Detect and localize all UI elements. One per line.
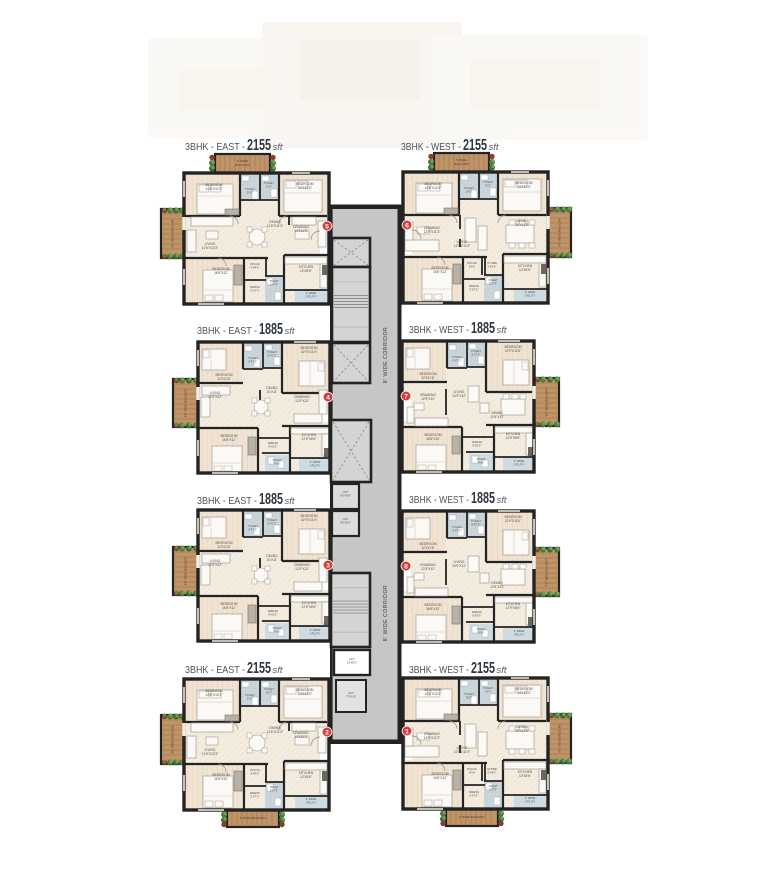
svg-text:5' WIDE BALCONY: 5' WIDE BALCONY bbox=[240, 816, 266, 820]
svg-text:12'9"X11'6": 12'9"X11'6" bbox=[301, 518, 318, 522]
svg-text:8' WIDE CORRIDOR: 8' WIDE CORRIDOR bbox=[383, 585, 389, 642]
svg-text:4'X4'6": 4'X4'6" bbox=[251, 266, 260, 270]
svg-text:2155: 2155 bbox=[247, 137, 271, 154]
svg-text:14'X13'3": 14'X13'3" bbox=[517, 691, 532, 695]
svg-text:12'X8'6": 12'X8'6" bbox=[300, 269, 313, 273]
svg-text:16'6"X12': 16'6"X12' bbox=[433, 776, 447, 780]
svg-text:5'X7'3": 5'X7'3" bbox=[453, 529, 462, 533]
svg-text:6'6"X6'6": 6'6"X6'6" bbox=[340, 493, 351, 497]
svg-text:6'6" WIDE BALCONY: 6'6" WIDE BALCONY bbox=[558, 724, 562, 753]
svg-text:5'X7': 5'X7' bbox=[247, 697, 254, 701]
svg-text:UTILITY: UTILITY bbox=[310, 632, 321, 636]
svg-text:3BHK - WEST -: 3BHK - WEST - bbox=[401, 141, 461, 153]
svg-text:5'X7'3": 5'X7'3" bbox=[472, 523, 481, 527]
svg-text:6'6" WIDE BALCONY: 6'6" WIDE BALCONY bbox=[558, 218, 562, 247]
svg-text:14'X11'3": 14'X11'3" bbox=[294, 735, 308, 739]
svg-text:2155: 2155 bbox=[247, 660, 271, 677]
svg-text:14'6"X12'3": 14'6"X12'3" bbox=[425, 186, 443, 190]
svg-text:12'9"X11'6": 12'9"X11'6" bbox=[301, 350, 318, 354]
svg-text:3BHK - EAST -: 3BHK - EAST - bbox=[197, 495, 257, 507]
svg-text:5' WIDE BALCONY: 5' WIDE BALCONY bbox=[459, 815, 485, 819]
svg-text:1885: 1885 bbox=[259, 321, 283, 338]
svg-text:sft: sft bbox=[273, 142, 283, 153]
svg-text:12'9"X11'6": 12'9"X11'6" bbox=[505, 349, 522, 353]
svg-text:16'6"X12': 16'6"X12' bbox=[222, 606, 236, 610]
svg-text:5'X7'3": 5'X7'3" bbox=[249, 528, 258, 532]
svg-text:14'6"X12'3": 14'6"X12'3" bbox=[206, 187, 224, 191]
svg-text:16'6"X12': 16'6"X12' bbox=[433, 270, 447, 274]
svg-text:4: 4 bbox=[326, 395, 330, 402]
svg-text:5'X7': 5'X7' bbox=[485, 184, 492, 188]
svg-text:14'X11'3": 14'X11'3" bbox=[515, 223, 529, 227]
svg-text:10'9"X12': 10'9"X12' bbox=[452, 564, 466, 568]
svg-text:12'X8'6": 12'X8'6" bbox=[300, 775, 313, 779]
svg-text:sft: sft bbox=[285, 496, 295, 507]
svg-text:3BHK - WEST -: 3BHK - WEST - bbox=[409, 664, 469, 676]
svg-text:5'X4'6": 5'X4'6" bbox=[488, 771, 497, 775]
svg-text:3BHK - EAST -: 3BHK - EAST - bbox=[185, 141, 245, 153]
svg-text:12'6"X12': 12'6"X12' bbox=[490, 585, 504, 589]
svg-text:12'9"X12': 12'9"X12' bbox=[295, 567, 309, 571]
svg-text:14'6"X12'3": 14'6"X12'3" bbox=[425, 692, 443, 696]
svg-text:8'X5'9": 8'X5'9" bbox=[269, 613, 278, 617]
svg-text:11'6"X11'3": 11'6"X11'3" bbox=[267, 224, 284, 228]
svg-text:16'6"X12': 16'6"X12' bbox=[214, 777, 228, 781]
svg-text:5'X7': 5'X7' bbox=[466, 190, 473, 194]
svg-text:sft: sft bbox=[489, 142, 499, 153]
svg-text:BALCONY: BALCONY bbox=[454, 162, 468, 166]
svg-text:5'X7': 5'X7' bbox=[485, 690, 492, 694]
svg-text:12'9"X12': 12'9"X12' bbox=[208, 395, 222, 399]
svg-text:12'9"X8'6": 12'9"X8'6" bbox=[302, 605, 318, 609]
svg-text:4'6" WIDE BALCONY: 4'6" WIDE BALCONY bbox=[184, 557, 188, 586]
svg-text:5'X4'6": 5'X4'6" bbox=[488, 265, 497, 269]
svg-text:5'X7': 5'X7' bbox=[247, 191, 254, 195]
svg-text:2: 2 bbox=[325, 730, 329, 737]
svg-text:1885: 1885 bbox=[471, 490, 495, 507]
svg-text:5'X4': 5'X4' bbox=[469, 265, 476, 269]
svg-text:6'6" WIDE BALCONY: 6'6" WIDE BALCONY bbox=[171, 725, 175, 754]
svg-text:12'9"X8'6": 12'9"X8'6" bbox=[506, 436, 522, 440]
svg-text:16'6"X12': 16'6"X12' bbox=[214, 271, 228, 275]
svg-text:5'X7'3": 5'X7'3" bbox=[489, 787, 497, 791]
svg-text:4'6" WIDE BALCONY: 4'6" WIDE BALCONY bbox=[184, 389, 188, 418]
svg-text:3BHK - EAST -: 3BHK - EAST - bbox=[197, 325, 257, 337]
svg-text:2155: 2155 bbox=[471, 660, 495, 677]
svg-text:sft: sft bbox=[497, 665, 507, 676]
svg-text:8' WIDE CORRIDOR: 8' WIDE CORRIDOR bbox=[383, 327, 389, 384]
svg-text:8'X5'9": 8'X5'9" bbox=[473, 614, 482, 618]
svg-text:5'X7'3": 5'X7'3" bbox=[472, 353, 481, 357]
svg-text:4'X4'6": 4'X4'6" bbox=[251, 772, 260, 776]
svg-text:14'6"X12'3": 14'6"X12'3" bbox=[206, 693, 224, 697]
svg-text:12'X8'3": 12'X8'3" bbox=[347, 660, 357, 664]
svg-text:14'X13'3": 14'X13'3" bbox=[298, 186, 313, 190]
svg-text:5'X7'3": 5'X7'3" bbox=[270, 788, 278, 792]
svg-text:14'X13'3": 14'X13'3" bbox=[298, 692, 313, 696]
svg-text:UTILITY: UTILITY bbox=[310, 464, 321, 468]
svg-text:3: 3 bbox=[326, 563, 330, 570]
svg-text:5'X7'3": 5'X7'3" bbox=[489, 281, 497, 285]
svg-text:12'X11'6": 12'X11'6" bbox=[217, 545, 231, 549]
svg-text:10'X11': 10'X11' bbox=[267, 558, 278, 562]
svg-text:10'X11': 10'X11' bbox=[267, 390, 278, 394]
svg-text:1885: 1885 bbox=[259, 491, 283, 508]
svg-text:1885: 1885 bbox=[471, 320, 495, 337]
svg-text:UTILITY: UTILITY bbox=[514, 633, 525, 637]
svg-text:UTILITY: UTILITY bbox=[306, 295, 317, 299]
svg-text:7'9"X10': 7'9"X10' bbox=[346, 694, 357, 698]
svg-text:12'6"X12': 12'6"X12' bbox=[490, 415, 504, 419]
svg-text:5'X7'3": 5'X7'3" bbox=[453, 359, 462, 363]
svg-text:4'6" WIDE BALCONY: 4'6" WIDE BALCONY bbox=[545, 558, 549, 587]
svg-text:8'X6': 8'X6' bbox=[274, 629, 280, 633]
svg-text:5'X7'3": 5'X7'3" bbox=[251, 795, 260, 799]
svg-text:4'6" WIDE BALCONY: 4'6" WIDE BALCONY bbox=[545, 388, 549, 417]
svg-text:7: 7 bbox=[404, 394, 408, 401]
svg-text:11'6"X13'3": 11'6"X13'3" bbox=[202, 246, 219, 250]
svg-text:sft: sft bbox=[285, 326, 295, 337]
svg-text:5'X7': 5'X7' bbox=[466, 696, 473, 700]
svg-text:2155: 2155 bbox=[463, 137, 487, 154]
svg-text:16'6"X12': 16'6"X12' bbox=[426, 607, 440, 611]
svg-text:16'6"X12': 16'6"X12' bbox=[222, 438, 236, 442]
svg-text:UTILITY: UTILITY bbox=[525, 294, 536, 298]
svg-text:8'X5'9": 8'X5'9" bbox=[473, 444, 482, 448]
svg-text:14'X13'3": 14'X13'3" bbox=[517, 185, 532, 189]
svg-text:sft: sft bbox=[497, 495, 507, 506]
svg-text:12'X11'6": 12'X11'6" bbox=[421, 376, 435, 380]
svg-text:16'6"X12': 16'6"X12' bbox=[426, 437, 440, 441]
svg-text:12'X11'6": 12'X11'6" bbox=[217, 377, 231, 381]
svg-text:5'X7'3": 5'X7'3" bbox=[251, 289, 260, 293]
svg-text:8'X5'9": 8'X5'9" bbox=[269, 445, 278, 449]
svg-text:12'9"X11'6": 12'9"X11'6" bbox=[505, 519, 522, 523]
svg-text:12'9"X12': 12'9"X12' bbox=[208, 563, 222, 567]
svg-text:3BHK - EAST -: 3BHK - EAST - bbox=[185, 664, 245, 676]
svg-text:12'X8'6": 12'X8'6" bbox=[519, 268, 532, 272]
svg-text:UTILITY: UTILITY bbox=[525, 800, 536, 804]
svg-text:3BHK - WEST -: 3BHK - WEST - bbox=[409, 324, 469, 336]
svg-text:1: 1 bbox=[405, 729, 409, 736]
svg-text:12'9"X11'3": 12'9"X11'3" bbox=[424, 230, 441, 234]
svg-text:5'X7'3": 5'X7'3" bbox=[270, 282, 278, 286]
svg-text:12'9"X11'3": 12'9"X11'3" bbox=[454, 244, 471, 248]
svg-text:5'X7'3": 5'X7'3" bbox=[470, 794, 479, 798]
svg-text:14'X11'3": 14'X11'3" bbox=[515, 729, 529, 733]
svg-text:12'9"X12': 12'9"X12' bbox=[295, 399, 309, 403]
svg-text:12'9"X12': 12'9"X12' bbox=[421, 567, 435, 571]
svg-text:5'X4': 5'X4' bbox=[469, 771, 476, 775]
svg-text:12'X11'6": 12'X11'6" bbox=[421, 546, 435, 550]
svg-text:6'6"X6'6": 6'6"X6'6" bbox=[340, 520, 351, 524]
svg-text:14'X11'3": 14'X11'3" bbox=[294, 229, 308, 233]
svg-text:8'X6': 8'X6' bbox=[478, 460, 484, 464]
svg-text:12'9"X11'3": 12'9"X11'3" bbox=[454, 750, 471, 754]
svg-text:6'6" WIDE BALCONY: 6'6" WIDE BALCONY bbox=[171, 219, 175, 248]
svg-text:10'9"X12': 10'9"X12' bbox=[452, 394, 466, 398]
svg-text:5'X7'3": 5'X7'3" bbox=[268, 354, 277, 358]
svg-text:12'9"X12': 12'9"X12' bbox=[421, 397, 435, 401]
svg-text:11'6"X11'3": 11'6"X11'3" bbox=[267, 730, 284, 734]
svg-text:UTILITY: UTILITY bbox=[306, 801, 317, 805]
svg-text:5'X7'3": 5'X7'3" bbox=[470, 288, 479, 292]
svg-text:5: 5 bbox=[325, 224, 329, 231]
svg-text:8: 8 bbox=[404, 564, 408, 571]
svg-text:11'6"X13'3": 11'6"X13'3" bbox=[202, 752, 219, 756]
svg-text:sft: sft bbox=[273, 665, 283, 676]
svg-text:12'9"X8'6": 12'9"X8'6" bbox=[506, 606, 522, 610]
svg-text:BALCONY: BALCONY bbox=[235, 163, 249, 167]
svg-text:5'X7': 5'X7' bbox=[266, 185, 273, 189]
svg-text:5'X7': 5'X7' bbox=[266, 691, 273, 695]
svg-text:8'X6': 8'X6' bbox=[478, 630, 484, 634]
svg-text:5'X7'3": 5'X7'3" bbox=[268, 522, 277, 526]
svg-text:3BHK - WEST -: 3BHK - WEST - bbox=[409, 494, 469, 506]
svg-text:UTILITY: UTILITY bbox=[514, 463, 525, 467]
svg-text:12'9"X8'6": 12'9"X8'6" bbox=[302, 437, 318, 441]
svg-text:8'X6': 8'X6' bbox=[274, 461, 280, 465]
svg-text:5'X7'3": 5'X7'3" bbox=[249, 360, 258, 364]
svg-text:12'X8'6": 12'X8'6" bbox=[519, 774, 532, 778]
svg-text:6: 6 bbox=[405, 223, 409, 230]
svg-text:sft: sft bbox=[497, 325, 507, 336]
svg-text:12'9"X11'3": 12'9"X11'3" bbox=[424, 736, 441, 740]
